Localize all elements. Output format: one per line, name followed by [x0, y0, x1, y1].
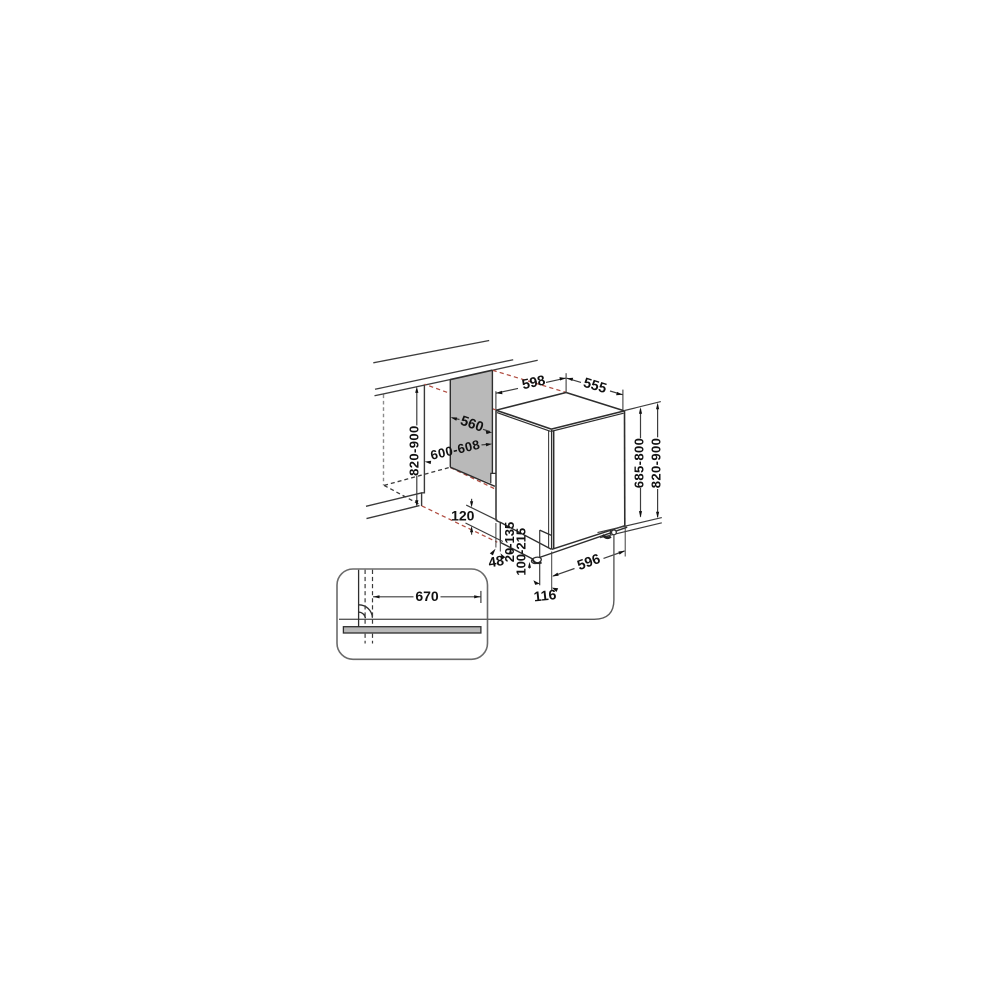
svg-text:120: 120	[451, 507, 475, 523]
svg-text:116: 116	[533, 586, 557, 604]
svg-text:820-900: 820-900	[406, 425, 421, 476]
svg-text:100-215: 100-215	[513, 528, 528, 576]
svg-text:670: 670	[415, 588, 439, 604]
svg-text:685-800: 685-800	[631, 438, 646, 489]
svg-text:820-900: 820-900	[649, 438, 664, 489]
